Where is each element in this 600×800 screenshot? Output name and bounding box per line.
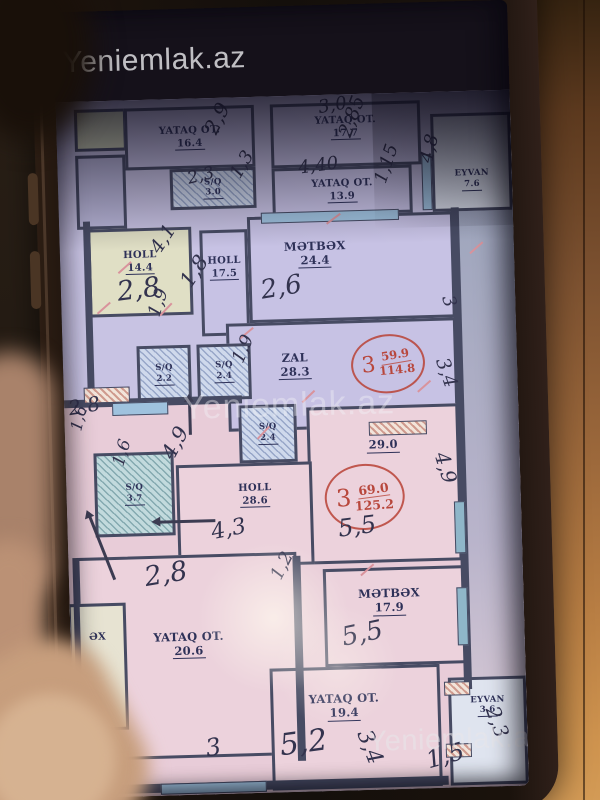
window — [112, 401, 168, 416]
photo-frame: YATAQ OT.16.4 S/Q3.0 YATAQ OT.17.7 YATAQ… — [0, 0, 600, 800]
volume-down-button — [30, 251, 42, 309]
door-opening — [444, 681, 470, 696]
screen-shadow — [371, 90, 513, 229]
handwritten-dim: 5,5 — [336, 510, 378, 543]
watermark-bottom: Yeniemlak.az — [367, 721, 529, 759]
watermark-middle: Yeniemlak.az — [182, 383, 396, 428]
room-sq-3-7: S/Q3.7 — [93, 451, 175, 537]
volume-up-button — [28, 173, 39, 225]
phone-screen: YATAQ OT.16.4 S/Q3.0 YATAQ OT.17.7 YATAQ… — [53, 0, 529, 798]
screen-photo: YATAQ OT.16.4 S/Q3.0 YATAQ OT.17.7 YATAQ… — [53, 0, 529, 798]
window — [456, 587, 469, 645]
window — [454, 501, 466, 553]
